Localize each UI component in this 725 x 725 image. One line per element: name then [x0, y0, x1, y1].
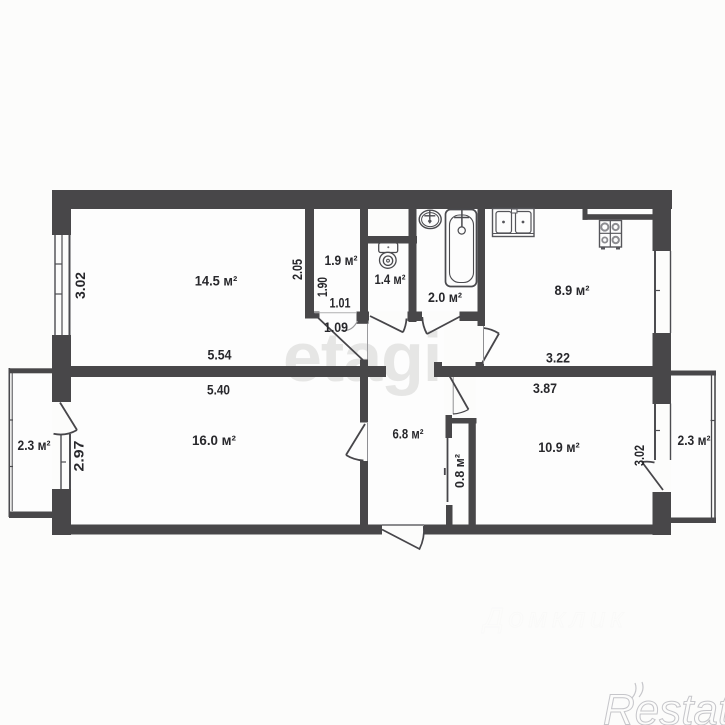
svg-text:Restate: Restate [603, 686, 725, 725]
svg-text:14.5 м²: 14.5 м² [195, 273, 238, 289]
svg-text:1.01: 1.01 [330, 295, 351, 311]
svg-text:1.90: 1.90 [314, 277, 330, 297]
svg-text:2.0 м²: 2.0 м² [428, 289, 462, 305]
svg-text:1.09: 1.09 [324, 319, 348, 335]
svg-text:2.3 м²: 2.3 м² [678, 433, 711, 448]
svg-text:2.3 м²: 2.3 м² [18, 438, 51, 453]
svg-text:8.9 м²: 8.9 м² [555, 282, 590, 298]
svg-text:1.9 м²: 1.9 м² [325, 252, 358, 268]
svg-text:16.0 м²: 16.0 м² [192, 432, 236, 448]
svg-text:3.22: 3.22 [546, 350, 570, 366]
svg-text:6.8 м²: 6.8 м² [393, 426, 424, 442]
svg-text:3.87: 3.87 [533, 380, 557, 396]
svg-text:10.9 м²: 10.9 м² [538, 439, 580, 455]
svg-text:3.02: 3.02 [72, 272, 88, 299]
svg-text:5.54: 5.54 [208, 347, 232, 363]
svg-text:0.8 м²: 0.8 м² [452, 453, 467, 488]
svg-text:3.02: 3.02 [631, 445, 647, 466]
svg-text:Домклик: Домклик [481, 602, 628, 633]
svg-text:2.05: 2.05 [289, 259, 305, 280]
svg-text:1.4 м²: 1.4 м² [375, 271, 406, 287]
svg-text:5.40: 5.40 [207, 382, 230, 398]
svg-text:2.97: 2.97 [71, 440, 87, 471]
